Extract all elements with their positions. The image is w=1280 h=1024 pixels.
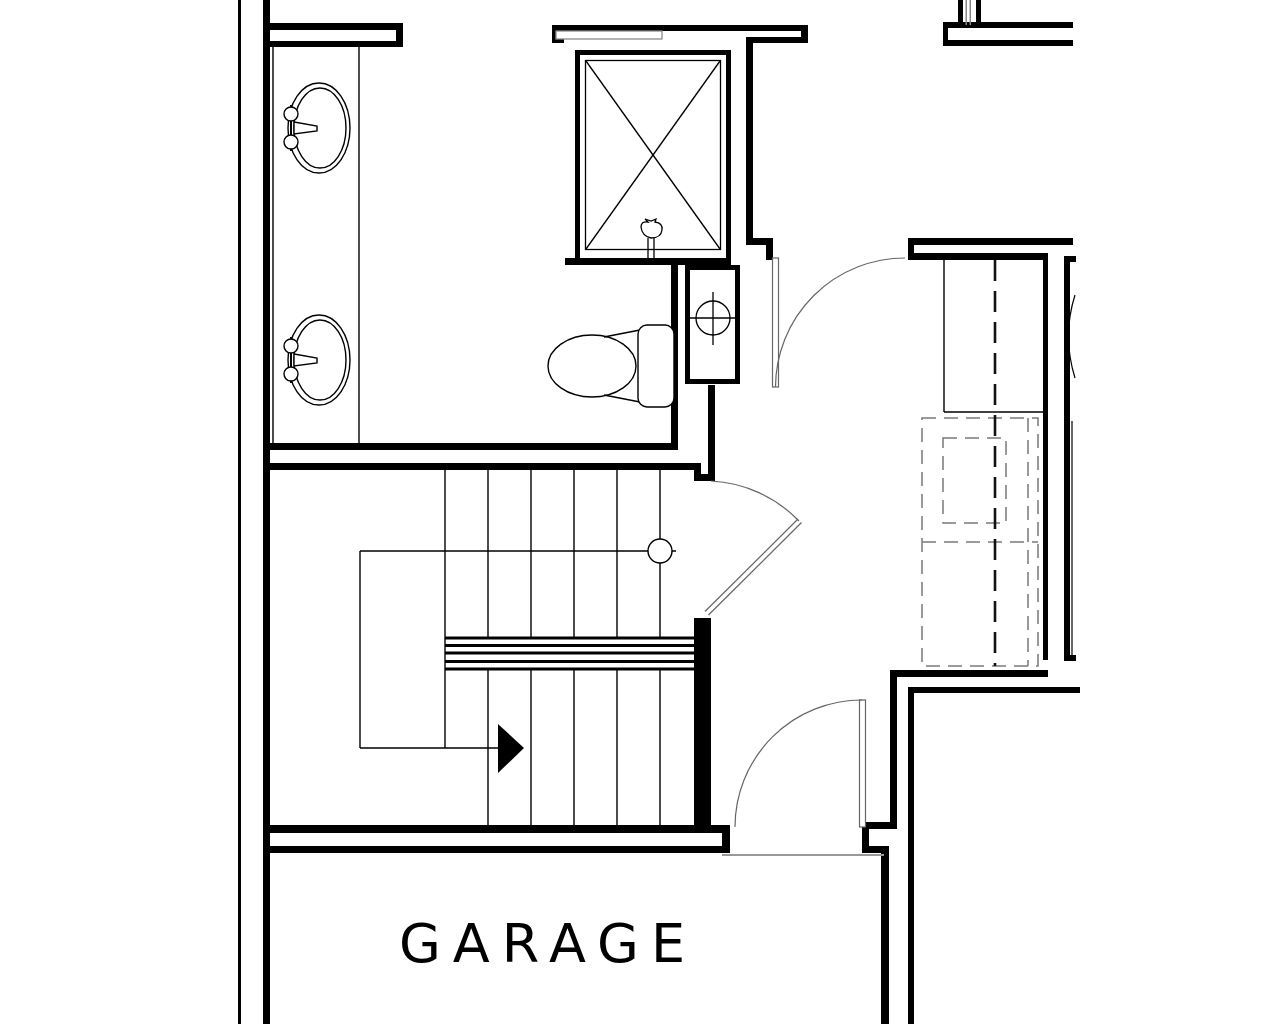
left-boundary-wall [238, 0, 241, 1024]
bath-top-wall-cap [396, 23, 403, 47]
shower-top-wall [552, 25, 808, 31]
bath-top-wall-outer [263, 23, 403, 30]
bath-bottom-wall [263, 443, 678, 450]
toilet-tank [638, 325, 674, 407]
right-wall-inner [1043, 253, 1048, 660]
vanity-counter [273, 43, 359, 448]
garage-door [735, 700, 866, 827]
topright-stub-glazing [966, 0, 972, 25]
newel-post-circle [648, 539, 672, 563]
left-wall [263, 0, 270, 1024]
faucet-spout [294, 354, 317, 366]
walls [238, 0, 1080, 1024]
toilet [548, 325, 674, 407]
faucet-handle [284, 135, 298, 149]
staircase [360, 470, 694, 825]
stair-door-leaf [709, 523, 802, 616]
understair-dashed-outline [922, 418, 1038, 666]
toilet-seat-line [604, 330, 640, 402]
topright-wall-inner [943, 40, 1073, 46]
plumbing-chase [688, 268, 738, 382]
garage-door-swing-arc [735, 700, 862, 827]
bath-top-wall-inner [263, 41, 403, 47]
right-wall-bottom-tick [1064, 655, 1076, 661]
floor-plan-drawing: GARAGE [0, 0, 1280, 1024]
direction-arrow-head [498, 724, 524, 773]
hall-bottom-wall-inner [908, 687, 1080, 693]
stair-door-leaf [705, 519, 798, 612]
faucet-handle [284, 107, 298, 121]
faucet-handle [284, 339, 298, 353]
hall-right-wall [890, 670, 897, 827]
stair-rail [360, 539, 676, 748]
right-wall-top-tick [1064, 256, 1076, 262]
stair-treads-upper [445, 470, 660, 748]
hall-top-wall-inner [908, 253, 1047, 260]
topright-stub-right [976, 0, 981, 25]
stair-door [705, 481, 802, 615]
faucet-spout [294, 122, 317, 134]
bath-door-swing-arc [776, 258, 906, 387]
hall-inner-wall [908, 687, 914, 1024]
sink-upper [284, 83, 350, 173]
garage-top-wall [263, 846, 722, 853]
stair-top-wall-end [694, 463, 701, 481]
sink-lower [284, 315, 350, 405]
faucet-handle [284, 367, 298, 381]
shower-drain-head [641, 219, 662, 238]
stair-bottom-wall [263, 825, 730, 833]
stair-right-wall [694, 618, 711, 832]
garage-door-leaf [860, 700, 866, 827]
stair-mid-band [445, 638, 694, 669]
stair-top-wall [263, 463, 694, 470]
dashed-inner-box [943, 438, 1006, 523]
bath-door-jamb-h [746, 238, 773, 245]
pocket-door-panel [556, 31, 662, 39]
garage-right-wall [881, 846, 889, 1024]
right-wall-outer [1064, 256, 1070, 661]
topright-wall-cap [943, 22, 948, 46]
hall-top-wall-outer [908, 238, 1073, 245]
stair-door-jamb-v [708, 385, 715, 481]
bath-door [773, 258, 906, 387]
topright-stub-left [958, 0, 963, 25]
shower-right-partition [746, 43, 753, 240]
shower-stall [578, 53, 729, 261]
garage-jamb-step-h [862, 822, 897, 829]
stair-door-swing-arc [711, 481, 799, 521]
garage-label: GARAGE [399, 912, 697, 975]
shower-top-wall-underside [746, 37, 808, 43]
hall-bottom-wall-outer [890, 670, 1048, 677]
toilet-bowl [548, 335, 636, 397]
floor-plan-sheet: GARAGE [0, 0, 1280, 1024]
garage-door-left-jamb [722, 833, 730, 853]
